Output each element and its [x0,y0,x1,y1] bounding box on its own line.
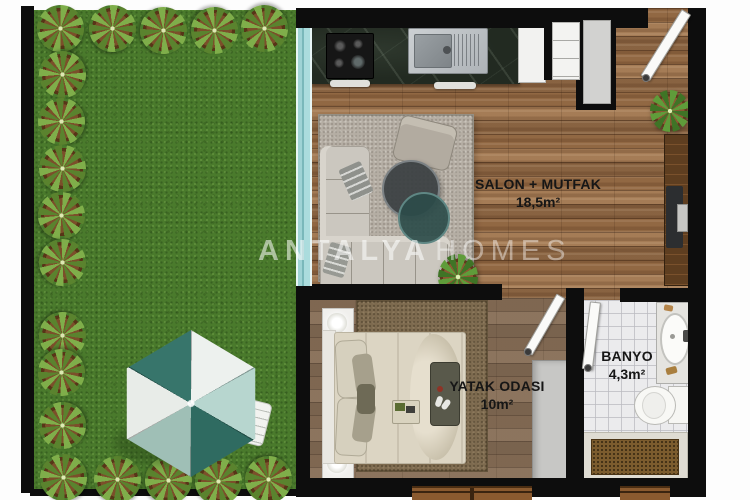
bedroom-window [412,486,532,500]
room-area: 10m² [433,396,561,414]
cabinet-handle [434,82,476,89]
wall-segment [620,288,690,302]
bathroom-window [620,486,670,500]
watermark-brand-second: HOMES [435,235,571,267]
bush-plant [244,455,292,500]
stove-burner [334,40,346,52]
wall-segment [566,288,584,480]
floor-plan-canvas: SALON + MUTFAK 18,5m² YATAK ODASI 10m² B… [0,0,750,500]
stove-burner [334,58,344,68]
cabinet-handle [330,80,370,87]
bath-accessory [664,304,674,311]
room-name: YATAK ODASI [433,378,561,396]
bush-plant [37,5,84,52]
stove-burner [351,55,365,69]
toilet-bowl-inner [642,392,666,419]
room-area: 4,3m² [586,366,668,384]
tv-mount [677,204,688,232]
tray-item [406,406,415,413]
potted-plant [650,90,690,132]
room-label-salon: SALON + MUTFAK 18,5m² [458,176,618,211]
room-label-banyo: BANYO 4,3m² [586,348,668,383]
dishwasher [518,23,546,83]
bedroom-door-pivot [524,348,532,356]
fridge [552,22,580,80]
room-name: BANYO [586,348,668,366]
stove-burner [353,39,363,49]
shower-mat [591,439,679,475]
room-name: SALON + MUTFAK [458,176,618,194]
wall-segment [296,284,310,497]
wall-segment [688,8,706,497]
stove [326,33,374,79]
entry-closet [583,20,611,104]
watermark: ANTALYAHOMES [258,237,571,266]
sink-drainboard [454,34,480,66]
accent-pillow-dark [357,384,375,414]
room-label-yatak-odasi: YATAK ODASI 10m² [433,378,561,413]
garden-fence-left [21,6,34,493]
watermark-brand-first: ANTALYA [258,235,431,267]
entrance-door-pivot [642,74,650,82]
tray-item [395,403,405,411]
sink-faucet [443,46,451,54]
wall-segment [296,284,502,300]
room-area: 18,5m² [458,194,618,212]
sink-drain [670,334,675,339]
